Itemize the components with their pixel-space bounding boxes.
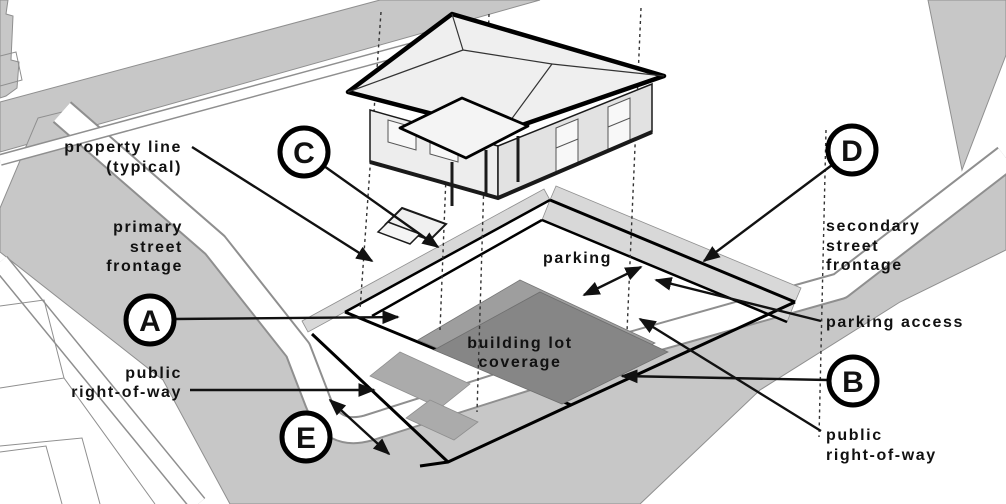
marker-d: D <box>828 126 876 174</box>
label-primary-frontage-3: frontage <box>106 258 183 275</box>
label-primary-frontage-2: street <box>130 239 183 256</box>
marker-e-label: E <box>296 422 316 455</box>
marker-c: C <box>280 128 328 176</box>
label-parking: parking <box>543 250 612 267</box>
marker-a: A <box>126 296 174 344</box>
marker-c-label: C <box>293 137 315 170</box>
projection-line <box>627 8 641 332</box>
diagram-canvas: A B C D E property line (typical) primar… <box>0 0 1006 504</box>
label-secondary-frontage-3: frontage <box>826 257 903 274</box>
marker-b: B <box>829 357 877 405</box>
zoning-diagram: A B C D E property line (typical) primar… <box>0 0 1006 504</box>
label-public-row-right-2: right-of-way <box>826 447 937 464</box>
label-property-line: property line <box>64 139 182 156</box>
frontage-d-arrow <box>704 165 832 261</box>
label-public-row-left-2: right-of-way <box>71 384 182 401</box>
label-public-row-right-1: public <box>826 427 883 444</box>
marker-d-label: D <box>841 135 863 168</box>
marker-e: E <box>282 413 330 461</box>
marker-a-label: A <box>139 305 161 338</box>
label-secondary-frontage-1: secondary <box>826 218 920 235</box>
parking-width-arrow <box>584 267 641 295</box>
parcel-line <box>0 446 62 504</box>
label-building-coverage-2: coverage <box>478 354 561 371</box>
marker-b-label: B <box>842 366 864 399</box>
far-street-wedge <box>928 0 1006 170</box>
label-public-row-left-1: public <box>125 365 182 382</box>
label-primary-frontage-1: primary <box>113 219 183 236</box>
parcel-line <box>0 438 100 504</box>
label-parking-access: parking access <box>826 314 964 331</box>
label-secondary-frontage-2: street <box>826 238 879 255</box>
label-property-line-2: (typical) <box>106 159 182 176</box>
label-building-coverage-1: building lot <box>467 335 572 352</box>
